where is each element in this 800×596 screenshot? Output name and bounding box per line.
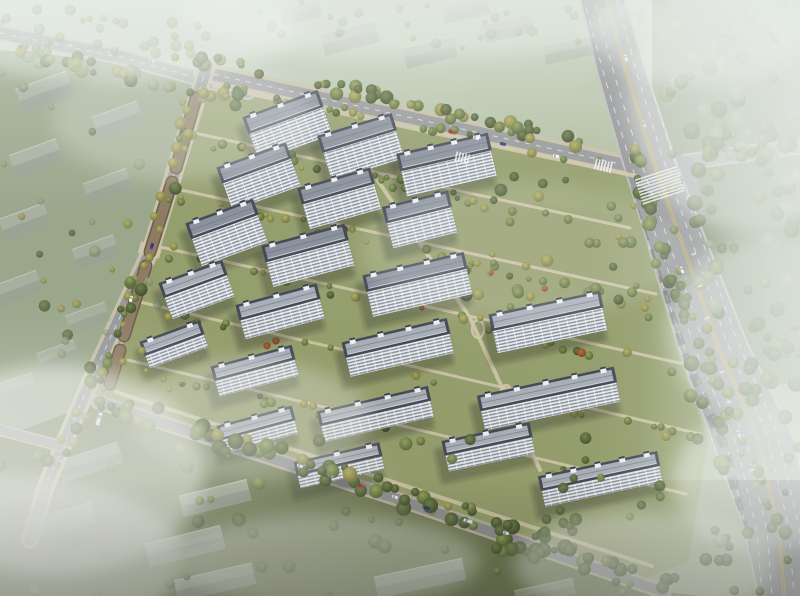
fog-patch [360, 180, 680, 320]
tree [582, 456, 590, 464]
tree [343, 467, 358, 482]
tree [407, 101, 415, 109]
tree [494, 122, 505, 133]
tree [41, 278, 47, 284]
tree [327, 345, 333, 351]
tree [411, 488, 420, 497]
tree [558, 483, 569, 494]
tree [783, 556, 792, 565]
tree [117, 306, 124, 313]
tree [374, 473, 384, 483]
tree [126, 303, 137, 314]
tree [428, 128, 434, 134]
tree [471, 113, 479, 121]
tree [378, 177, 384, 183]
tree [445, 513, 459, 527]
tree [105, 352, 112, 359]
tree [366, 93, 377, 104]
tree [164, 313, 172, 321]
tree [267, 215, 274, 222]
tree [577, 348, 586, 357]
tree [444, 502, 453, 511]
tree [169, 182, 182, 195]
tree [399, 437, 412, 450]
tree [357, 113, 364, 120]
tree [18, 213, 25, 220]
tree [511, 121, 523, 133]
tree [462, 502, 470, 510]
tree [1, 161, 7, 167]
tree [72, 300, 81, 309]
tree [597, 474, 605, 482]
tree [465, 434, 476, 445]
tree [454, 109, 465, 120]
scene-canvas [0, 0, 800, 596]
tree [416, 437, 425, 446]
tree [119, 358, 127, 366]
tree [39, 300, 51, 312]
tree [89, 219, 96, 226]
tree [570, 474, 578, 482]
tree [493, 567, 501, 575]
tree [156, 226, 164, 234]
tree [560, 156, 567, 163]
tree [57, 350, 66, 359]
tree [326, 106, 333, 113]
tree [109, 267, 115, 273]
tree [580, 432, 592, 444]
tree [399, 495, 410, 506]
tree [145, 254, 153, 262]
tree [114, 330, 121, 337]
tree [207, 496, 214, 503]
tree [18, 82, 28, 92]
tree [144, 277, 153, 286]
fog-patch [130, 360, 370, 480]
tree [624, 417, 632, 425]
tree [38, 198, 45, 205]
tree [349, 108, 358, 117]
tree [525, 133, 535, 143]
tree [150, 212, 159, 221]
tree [337, 80, 345, 88]
tree [562, 177, 569, 184]
tree [61, 337, 69, 345]
tree [170, 243, 178, 251]
tree [299, 166, 304, 171]
tree [123, 219, 133, 229]
tree [527, 148, 537, 158]
tree [420, 125, 428, 133]
tree [556, 506, 565, 515]
tree [281, 214, 290, 223]
tree [654, 480, 665, 491]
tree [623, 348, 632, 357]
tree [332, 109, 340, 117]
tree [165, 197, 171, 203]
tree [135, 283, 148, 296]
tree [369, 484, 383, 498]
tree [103, 329, 110, 336]
tree [57, 305, 65, 313]
tree [447, 454, 457, 464]
tree [314, 81, 322, 89]
tree [389, 99, 399, 109]
tree [140, 262, 148, 270]
tree [637, 501, 646, 510]
tree [330, 87, 343, 100]
tree [120, 322, 126, 328]
tree [138, 347, 146, 355]
tree [144, 368, 149, 373]
tree [533, 127, 540, 134]
tree [165, 255, 173, 263]
tree [440, 104, 451, 115]
tree [48, 104, 55, 111]
tree [562, 130, 575, 143]
tree [179, 195, 184, 200]
tree [569, 140, 582, 153]
architectural-aerial-rendering [0, 0, 800, 596]
fog-patch [52, 60, 312, 180]
tree [69, 230, 76, 237]
tree [250, 268, 258, 276]
tree [326, 283, 332, 289]
tree [89, 245, 101, 257]
tree [495, 525, 506, 536]
tree [354, 85, 363, 94]
tree [431, 380, 437, 386]
tree [125, 276, 135, 286]
tree [382, 481, 393, 492]
tree [192, 515, 205, 528]
tree [491, 543, 502, 554]
tree [220, 324, 226, 330]
tree [436, 123, 446, 133]
tree [423, 498, 439, 514]
tree [542, 514, 552, 524]
tree [301, 339, 308, 346]
tree [36, 251, 43, 258]
tree [341, 104, 348, 111]
tree [327, 291, 335, 299]
tree [156, 192, 166, 202]
